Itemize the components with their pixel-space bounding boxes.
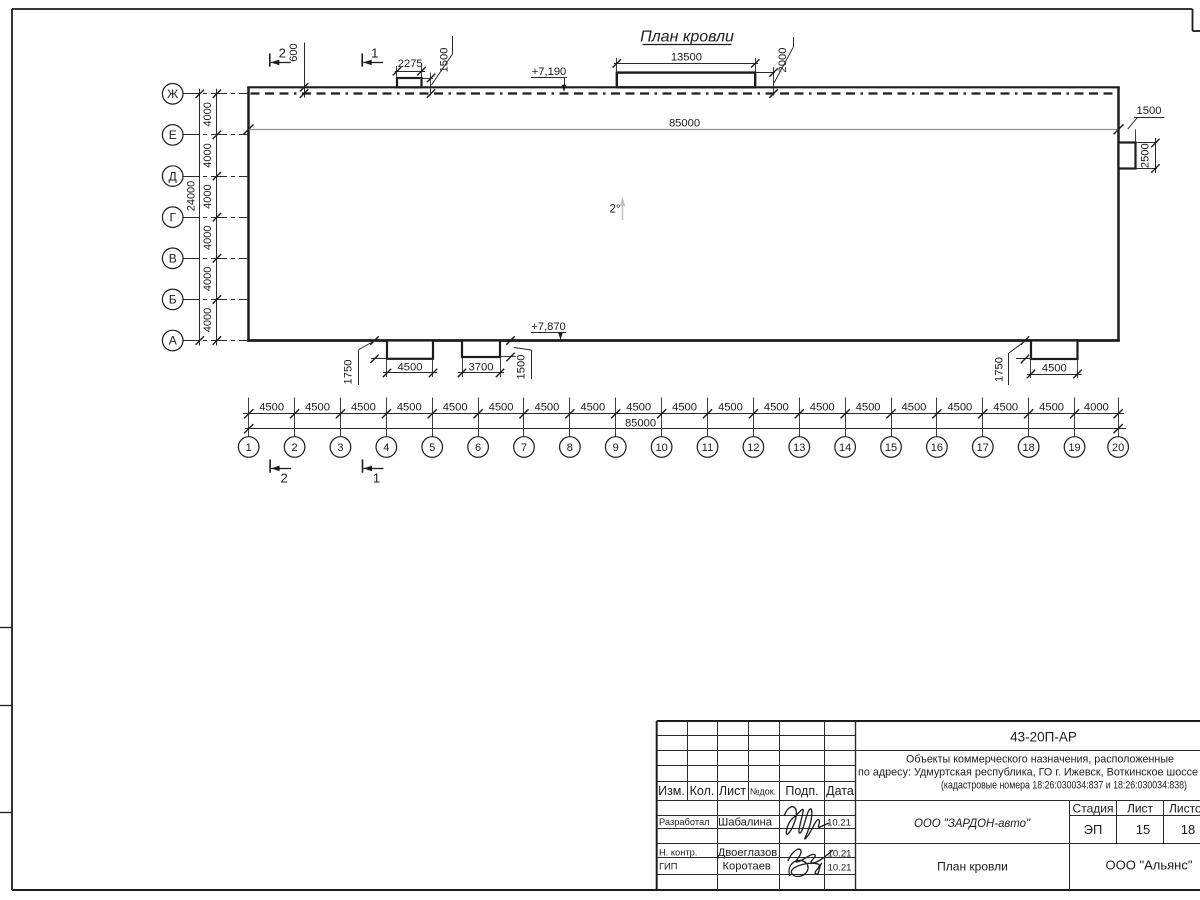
svg-text:10: 10 <box>655 442 667 454</box>
svg-text:Листов: Листов <box>1169 802 1200 816</box>
svg-text:Б: Б <box>169 293 177 307</box>
svg-text:Подп.: Подп. <box>785 784 818 798</box>
svg-text:4500: 4500 <box>810 402 835 414</box>
svg-text:4500: 4500 <box>993 402 1018 414</box>
svg-text:Лист: Лист <box>719 784 746 798</box>
svg-text:1: 1 <box>371 45 378 60</box>
svg-text:+7,870: +7,870 <box>531 321 566 333</box>
svg-text:11: 11 <box>702 442 713 454</box>
svg-text:4500: 4500 <box>443 402 468 414</box>
svg-text:4: 4 <box>383 442 389 454</box>
svg-text:4000: 4000 <box>202 226 214 250</box>
svg-text:Г: Г <box>169 210 176 224</box>
svg-text:В: В <box>169 252 177 266</box>
svg-text:2: 2 <box>279 45 286 60</box>
svg-text:3700: 3700 <box>469 362 494 374</box>
svg-text:4000: 4000 <box>202 308 214 332</box>
svg-text:2500: 2500 <box>1139 143 1151 168</box>
svg-text:20: 20 <box>1112 442 1124 454</box>
svg-text:14: 14 <box>839 442 851 454</box>
svg-text:12: 12 <box>747 442 759 454</box>
svg-text:2°: 2° <box>610 204 621 216</box>
svg-text:по адресу: Удмуртская республи: по адресу: Удмуртская республика, ГО г. … <box>858 766 1198 778</box>
svg-text:6: 6 <box>475 442 481 454</box>
svg-text:План кровли: План кровли <box>937 860 1008 874</box>
svg-text:Ж: Ж <box>167 87 178 101</box>
svg-text:17: 17 <box>977 442 989 454</box>
svg-text:18: 18 <box>1181 822 1195 837</box>
svg-text:19: 19 <box>1068 442 1080 454</box>
svg-text:4500: 4500 <box>489 402 514 414</box>
svg-text:План кровли: План кровли <box>640 29 734 46</box>
svg-text:4500: 4500 <box>902 402 927 414</box>
svg-text:85000: 85000 <box>625 417 656 429</box>
svg-text:4000: 4000 <box>1084 402 1109 414</box>
svg-text:Шабалина: Шабалина <box>718 816 773 828</box>
svg-text:ООО "Альянс": ООО "Альянс" <box>1106 857 1193 872</box>
svg-text:4500: 4500 <box>1039 402 1064 414</box>
svg-text:18: 18 <box>1023 442 1035 454</box>
svg-text:№док.: №док. <box>750 787 776 797</box>
svg-text:А: А <box>169 334 177 348</box>
svg-text:15: 15 <box>885 442 897 454</box>
svg-text:Стадия: Стадия <box>1073 802 1114 816</box>
svg-text:13: 13 <box>793 442 805 454</box>
svg-text:1: 1 <box>246 442 252 454</box>
svg-text:Кол.: Кол. <box>690 784 715 798</box>
svg-text:1500: 1500 <box>439 48 451 73</box>
svg-text:Разработал: Разработал <box>659 817 710 827</box>
svg-text:10.21: 10.21 <box>828 862 852 873</box>
svg-text:ГИП: ГИП <box>659 862 677 872</box>
svg-text:Е: Е <box>169 128 177 142</box>
svg-text:8: 8 <box>567 442 573 454</box>
svg-text:4000: 4000 <box>202 184 214 208</box>
svg-text:600: 600 <box>288 43 300 61</box>
svg-text:ООО "ЗАРДОН-авто": ООО "ЗАРДОН-авто" <box>914 816 1031 830</box>
svg-text:3: 3 <box>337 442 343 454</box>
svg-text:9: 9 <box>613 442 619 454</box>
svg-text:5: 5 <box>429 442 435 454</box>
svg-text:4000: 4000 <box>202 267 214 291</box>
svg-text:1750: 1750 <box>994 357 1006 382</box>
svg-text:85000: 85000 <box>669 117 700 129</box>
svg-text:Объекты коммерческого назначен: Объекты коммерческого назначения, распол… <box>906 753 1174 765</box>
svg-text:Лист: Лист <box>1127 802 1154 816</box>
svg-text:4500: 4500 <box>305 402 330 414</box>
svg-text:2: 2 <box>280 470 287 485</box>
svg-text:+7,190: +7,190 <box>532 66 567 78</box>
svg-text:10.21: 10.21 <box>827 817 851 828</box>
svg-text:4000: 4000 <box>202 143 214 167</box>
svg-text:10.21: 10.21 <box>828 848 852 859</box>
svg-text:4500: 4500 <box>1042 363 1067 375</box>
svg-text:4500: 4500 <box>351 402 376 414</box>
svg-text:1: 1 <box>373 470 380 485</box>
svg-text:1500: 1500 <box>1137 105 1162 117</box>
svg-text:4500: 4500 <box>398 362 423 374</box>
svg-text:4500: 4500 <box>534 402 559 414</box>
svg-text:Изм.: Изм. <box>658 784 685 798</box>
svg-text:4500: 4500 <box>764 402 789 414</box>
svg-text:7: 7 <box>521 442 527 454</box>
svg-text:Н. контр.: Н. контр. <box>659 848 697 858</box>
svg-text:4500: 4500 <box>259 402 284 414</box>
svg-text:4000: 4000 <box>202 102 214 126</box>
svg-text:4500: 4500 <box>856 402 881 414</box>
svg-text:4500: 4500 <box>947 402 972 414</box>
svg-text:13500: 13500 <box>671 52 702 64</box>
svg-text:1500: 1500 <box>515 355 527 380</box>
svg-text:43-20П-АР: 43-20П-АР <box>1010 730 1077 745</box>
svg-text:4500: 4500 <box>672 402 697 414</box>
svg-text:4500: 4500 <box>397 402 422 414</box>
svg-text:ЭП: ЭП <box>1084 822 1103 837</box>
svg-text:4500: 4500 <box>626 402 651 414</box>
svg-text:Дата: Дата <box>826 784 854 798</box>
svg-text:24000: 24000 <box>186 181 198 212</box>
svg-text:2: 2 <box>292 442 298 454</box>
svg-text:4500: 4500 <box>718 402 743 414</box>
svg-text:Коротаев: Коротаев <box>723 861 771 873</box>
svg-text:1750: 1750 <box>343 360 355 385</box>
svg-text:16: 16 <box>931 442 943 454</box>
svg-text:(кадастровые номера 18:26:0300: (кадастровые номера 18:26:030034:837 и 1… <box>941 780 1187 792</box>
svg-text:2275: 2275 <box>398 58 423 70</box>
svg-text:Двоеглазов: Двоеглазов <box>718 847 778 859</box>
svg-text:4500: 4500 <box>580 402 605 414</box>
svg-text:Д: Д <box>169 169 177 183</box>
svg-text:2000: 2000 <box>777 48 789 73</box>
svg-text:15: 15 <box>1136 822 1150 837</box>
